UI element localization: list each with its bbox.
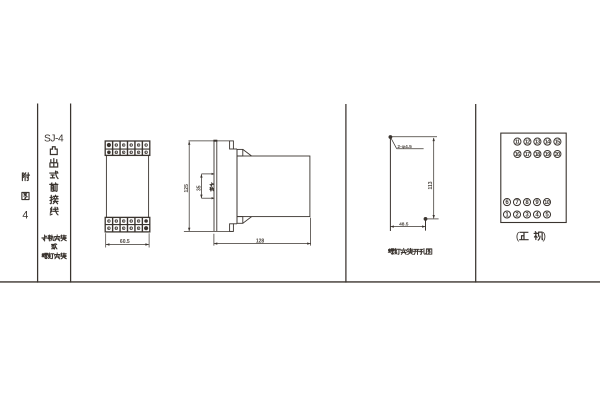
svg-text:35: 35 xyxy=(196,185,202,191)
svg-text:125: 125 xyxy=(184,184,190,193)
svg-text:12: 12 xyxy=(525,140,530,146)
svg-text:13: 13 xyxy=(535,140,540,146)
svg-text:18: 18 xyxy=(535,152,540,158)
svg-text:19: 19 xyxy=(545,152,550,158)
svg-text:14: 14 xyxy=(545,140,550,146)
svg-text:17: 17 xyxy=(525,152,530,158)
svg-text:SJ-4: SJ-4 xyxy=(44,133,64,144)
svg-text:16: 16 xyxy=(515,152,520,158)
svg-text:60.5: 60.5 xyxy=(120,239,130,245)
svg-text:10: 10 xyxy=(544,200,549,206)
svg-text:11: 11 xyxy=(515,140,520,146)
svg-text:20: 20 xyxy=(555,152,560,158)
svg-text:4: 4 xyxy=(22,209,28,221)
svg-text:): ) xyxy=(543,232,546,243)
svg-text:2-φ4.5: 2-φ4.5 xyxy=(397,144,412,150)
svg-text:128: 128 xyxy=(256,238,265,244)
svg-text:48.5: 48.5 xyxy=(399,222,409,228)
svg-text:113: 113 xyxy=(428,181,434,189)
svg-text:15: 15 xyxy=(555,140,560,146)
